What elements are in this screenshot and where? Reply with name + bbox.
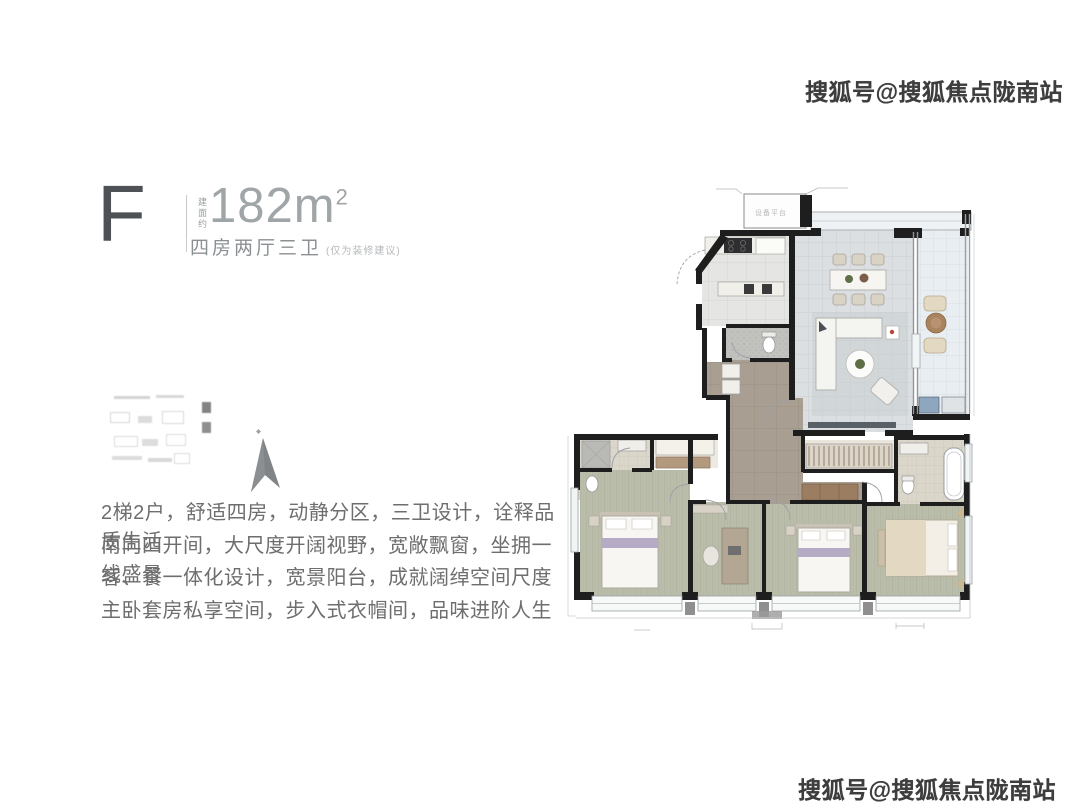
layout-text: 四房两厅三卫	[190, 238, 322, 259]
tv-console	[808, 422, 896, 428]
area-superscript: 2	[336, 185, 349, 210]
balcony-sink	[919, 397, 939, 413]
faded-watermark-remnant	[108, 390, 226, 476]
table-plant	[845, 275, 853, 283]
desk	[722, 528, 748, 584]
storage-cabinet	[656, 439, 714, 455]
area-value: 182m2	[209, 178, 349, 234]
area-prefix-label: 建面约	[197, 197, 207, 230]
bedL-throw	[602, 538, 658, 548]
hall-cabinet	[722, 364, 740, 378]
north-arrow-icon	[230, 426, 302, 504]
description-line-2: 南向四开间，大尺度开阔视野，宽敞飘窗，坐拥一线盛景	[101, 529, 571, 562]
equipment-platform: 设备平台	[744, 194, 812, 228]
layout-label: 四房两厅三卫(仅为装修建议)	[190, 233, 401, 260]
daybed	[656, 457, 710, 468]
vanity	[900, 443, 928, 454]
description-line-3: 客、餐一体化设计，宽景阳台，成就阔绰空间尺度	[101, 561, 571, 594]
bed3-throw	[798, 548, 850, 557]
dining-table	[830, 270, 886, 290]
description-paragraph: 2梯2户，舒适四房，动静分区，三卫设计，诠释品质生活 南向四开间，大尺度开阔视野…	[101, 496, 571, 626]
bay-window-left	[571, 488, 578, 552]
balcony-chair	[924, 296, 946, 311]
balcony-floor	[918, 214, 968, 416]
equipment-platform-label: 设备平台	[755, 208, 787, 217]
washing-machine	[942, 397, 965, 413]
area-number: 182	[209, 179, 294, 233]
desk-chair	[703, 546, 719, 566]
floor-plan: 设备平台	[556, 186, 996, 656]
toilet-ensuite	[586, 476, 598, 492]
description-line-4: 主卧套房私享空间，步入式衣帽间，品味进阶人生	[101, 594, 571, 627]
study-shelf	[692, 505, 728, 513]
bay-window-master	[965, 516, 972, 584]
area-unit: m	[294, 179, 336, 233]
unit-type-letter: F	[97, 174, 146, 254]
header-divider	[186, 195, 187, 252]
toilet-guest	[763, 337, 775, 353]
bed-bench	[878, 530, 885, 566]
page: F 建面约 182m2 四房两厅三卫(仅为装修建议) 2梯2户，舒适四房，动静分…	[0, 0, 1080, 810]
bath-guest-floor	[726, 328, 789, 360]
bench-sofa	[802, 484, 858, 500]
stove	[724, 238, 752, 253]
fridge	[756, 238, 785, 254]
watermark-top: 搜狐号@搜狐焦点陇南站	[805, 73, 1063, 107]
balcony-slider	[912, 334, 920, 368]
description-line-1: 2梯2户，舒适四房，动静分区，三卫设计，诠释品质生活	[101, 496, 571, 529]
watermark-bottom: 搜狐号@搜狐焦点陇南站	[798, 771, 1056, 805]
layout-note: (仅为装修建议)	[326, 246, 401, 257]
